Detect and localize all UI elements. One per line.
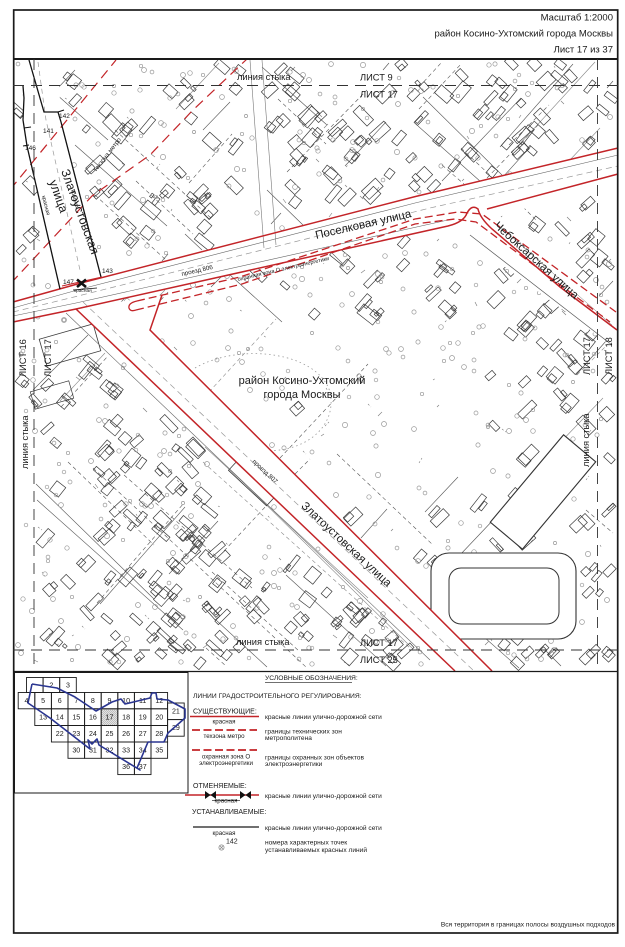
- svg-text:22: 22: [56, 730, 64, 738]
- svg-text:19: 19: [139, 713, 147, 721]
- svg-text:28: 28: [155, 730, 163, 738]
- svg-text:электроэнергетики: электроэнергетики: [199, 760, 253, 767]
- svg-text:ЛИСТ 16: ЛИСТ 16: [18, 339, 28, 377]
- svg-text:33: 33: [122, 746, 130, 754]
- svg-text:ЛИСТ 25: ЛИСТ 25: [360, 655, 398, 665]
- svg-text:СУЩЕСТВУЮЩИЕ:: СУЩЕСТВУЮЩИЕ:: [193, 709, 257, 716]
- svg-text:красная: красная: [215, 798, 238, 805]
- svg-text:6: 6: [58, 697, 62, 705]
- svg-text:26: 26: [122, 730, 130, 738]
- svg-text:красная: красная: [213, 830, 236, 837]
- svg-text:ЛИСТ 17: ЛИСТ 17: [43, 339, 53, 377]
- svg-text:ЛИСТ 17: ЛИСТ 17: [360, 90, 398, 100]
- svg-text:27: 27: [139, 730, 147, 738]
- svg-text:3: 3: [66, 681, 70, 689]
- svg-text:ЛИНИИ ГРАДОСТРОИТЕЛЬНОГО РЕГУЛ: ЛИНИИ ГРАДОСТРОИТЕЛЬНОГО РЕГУЛИРОВАНИЯ:: [193, 693, 362, 700]
- svg-text:электроэнергетики: электроэнергетики: [265, 761, 323, 768]
- svg-text:красные линии улично-дорожной: красные линии улично-дорожной сети: [265, 824, 382, 832]
- svg-text:район Косино-Ухтомский города: район Косино-Ухтомский города Москвы: [434, 29, 613, 40]
- svg-text:Масштаб 1:2000: Масштаб 1:2000: [541, 13, 613, 24]
- svg-text:35: 35: [155, 746, 163, 754]
- svg-text:16: 16: [89, 713, 97, 721]
- svg-text:ЛИСТ 9: ЛИСТ 9: [360, 73, 393, 83]
- svg-text:УСТАНАВЛИВАЕМЫЕ:: УСТАНАВЛИВАЕМЫЕ:: [192, 809, 266, 816]
- svg-text:красная: красная: [213, 719, 236, 726]
- svg-text:14: 14: [56, 713, 64, 721]
- svg-text:линия стыка: линия стыка: [236, 637, 290, 647]
- svg-text:18: 18: [122, 713, 130, 721]
- svg-text:номера характерных точек: номера характерных точек: [265, 840, 347, 847]
- svg-text:города Москвы: города Москвы: [264, 389, 341, 401]
- svg-text:УСЛОВНЫЕ ОБОЗНАЧЕНИЯ:: УСЛОВНЫЕ ОБОЗНАЧЕНИЯ:: [265, 675, 358, 682]
- svg-text:ЛИСТ 17: ЛИСТ 17: [582, 337, 592, 375]
- svg-text:красные линии улично-дорожной: красные линии улично-дорожной сети: [265, 792, 382, 800]
- svg-text:район Косино-Ухтомский: район Косино-Ухтомский: [239, 375, 366, 387]
- svg-text:ОТМЕНЯЕМЫЕ:: ОТМЕНЯЕМЫЕ:: [193, 783, 247, 790]
- svg-text:142: 142: [226, 839, 238, 846]
- svg-text:15: 15: [72, 713, 80, 721]
- svg-text:устанавливаемых красных линий: устанавливаемых красных линий: [265, 846, 367, 854]
- svg-text:8: 8: [91, 697, 95, 705]
- svg-text:красные линии улично-дорожной: красные линии улично-дорожной сети: [265, 713, 382, 721]
- svg-text:метрополитена: метрополитена: [265, 735, 312, 742]
- svg-text:30: 30: [72, 746, 80, 754]
- svg-text:линия стыка: линия стыка: [581, 413, 591, 467]
- svg-text:25: 25: [106, 730, 114, 738]
- svg-text:Лист 17 из 37: Лист 17 из 37: [554, 45, 613, 56]
- svg-text:линия стыка: линия стыка: [20, 415, 30, 469]
- svg-text:линия стыка: линия стыка: [237, 72, 291, 82]
- svg-text:21: 21: [172, 708, 180, 716]
- svg-text:141: 141: [43, 128, 54, 135]
- svg-text:142: 142: [59, 113, 70, 120]
- svg-text:20: 20: [155, 713, 163, 721]
- svg-text:техзона метро: техзона метро: [203, 733, 245, 740]
- svg-text:17: 17: [106, 713, 114, 721]
- svg-text:ЛИСТ 18: ЛИСТ 18: [604, 337, 614, 375]
- svg-text:ЛИСТ 17: ЛИСТ 17: [360, 638, 398, 648]
- svg-text:143: 143: [102, 268, 113, 275]
- svg-text:Вся территория в границах поло: Вся территория в границах полосы воздушн…: [441, 922, 616, 929]
- svg-text:24: 24: [89, 730, 97, 738]
- svg-text:146: 146: [25, 145, 36, 152]
- svg-text:5: 5: [41, 697, 45, 705]
